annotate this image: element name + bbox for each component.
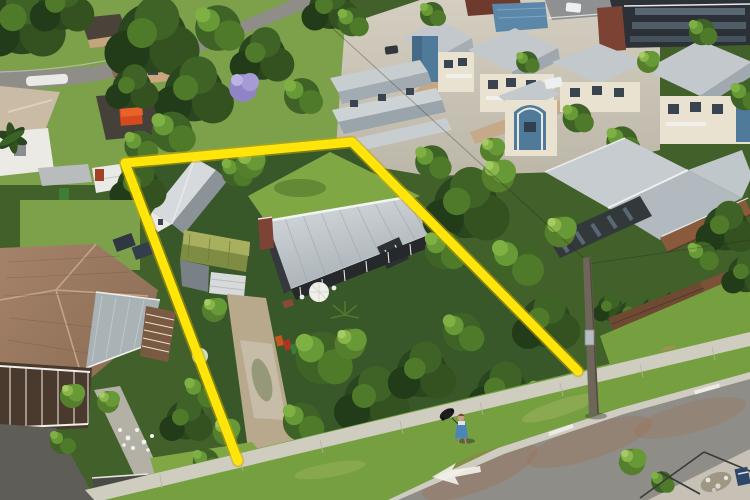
brick-chimney (258, 216, 274, 250)
aerial-photo (0, 0, 750, 500)
person-body (455, 423, 468, 439)
green-wheelie-bin (59, 188, 69, 202)
aerial-photo-canvas (0, 0, 750, 500)
garage-door (209, 272, 246, 297)
pole-meter-box (585, 330, 594, 345)
car-white (566, 2, 582, 13)
